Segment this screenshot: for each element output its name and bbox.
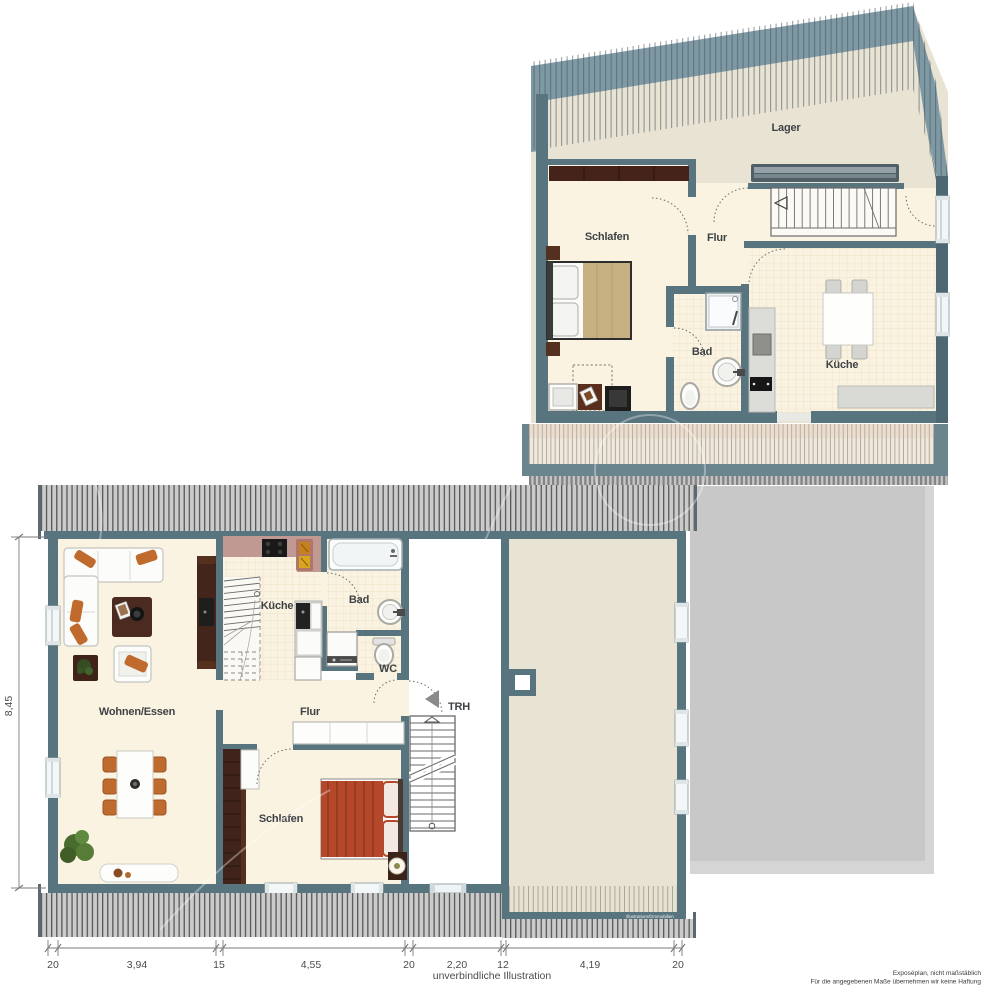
svg-text:Lager: Lager <box>772 122 802 134</box>
svg-text:3,94: 3,94 <box>127 959 148 971</box>
svg-text:Bad: Bad <box>349 594 369 606</box>
svg-text:Küche: Küche <box>826 359 859 371</box>
svg-text:Flur: Flur <box>707 232 728 244</box>
svg-text:Für die angegebenen Maße übern: Für die angegebenen Maße übernehmen wir … <box>810 979 981 986</box>
svg-text:Flur: Flur <box>300 706 321 718</box>
svg-text:20: 20 <box>403 959 415 971</box>
svg-text:Schlafen: Schlafen <box>259 813 304 825</box>
svg-text:Illustrations©Immobilien: Illustrations©Immobilien <box>626 913 674 919</box>
svg-text:8,45: 8,45 <box>3 696 15 717</box>
svg-text:4,55: 4,55 <box>301 959 322 971</box>
svg-text:15: 15 <box>213 959 225 971</box>
svg-text:Exposéplan, nicht maßstäblich: Exposéplan, nicht maßstäblich <box>893 970 982 977</box>
svg-text:4,19: 4,19 <box>580 959 601 971</box>
svg-text:20: 20 <box>47 959 59 971</box>
svg-text:Küche: Küche <box>261 600 294 612</box>
svg-text:20: 20 <box>672 959 684 971</box>
svg-text:TRH: TRH <box>448 701 470 713</box>
svg-text:Schlafen: Schlafen <box>585 231 630 243</box>
svg-text:unverbindliche Illustration: unverbindliche Illustration <box>433 970 552 982</box>
svg-text:Bad: Bad <box>692 346 712 358</box>
svg-text:WC: WC <box>379 663 397 675</box>
svg-text:Wohnen/Essen: Wohnen/Essen <box>99 706 176 718</box>
